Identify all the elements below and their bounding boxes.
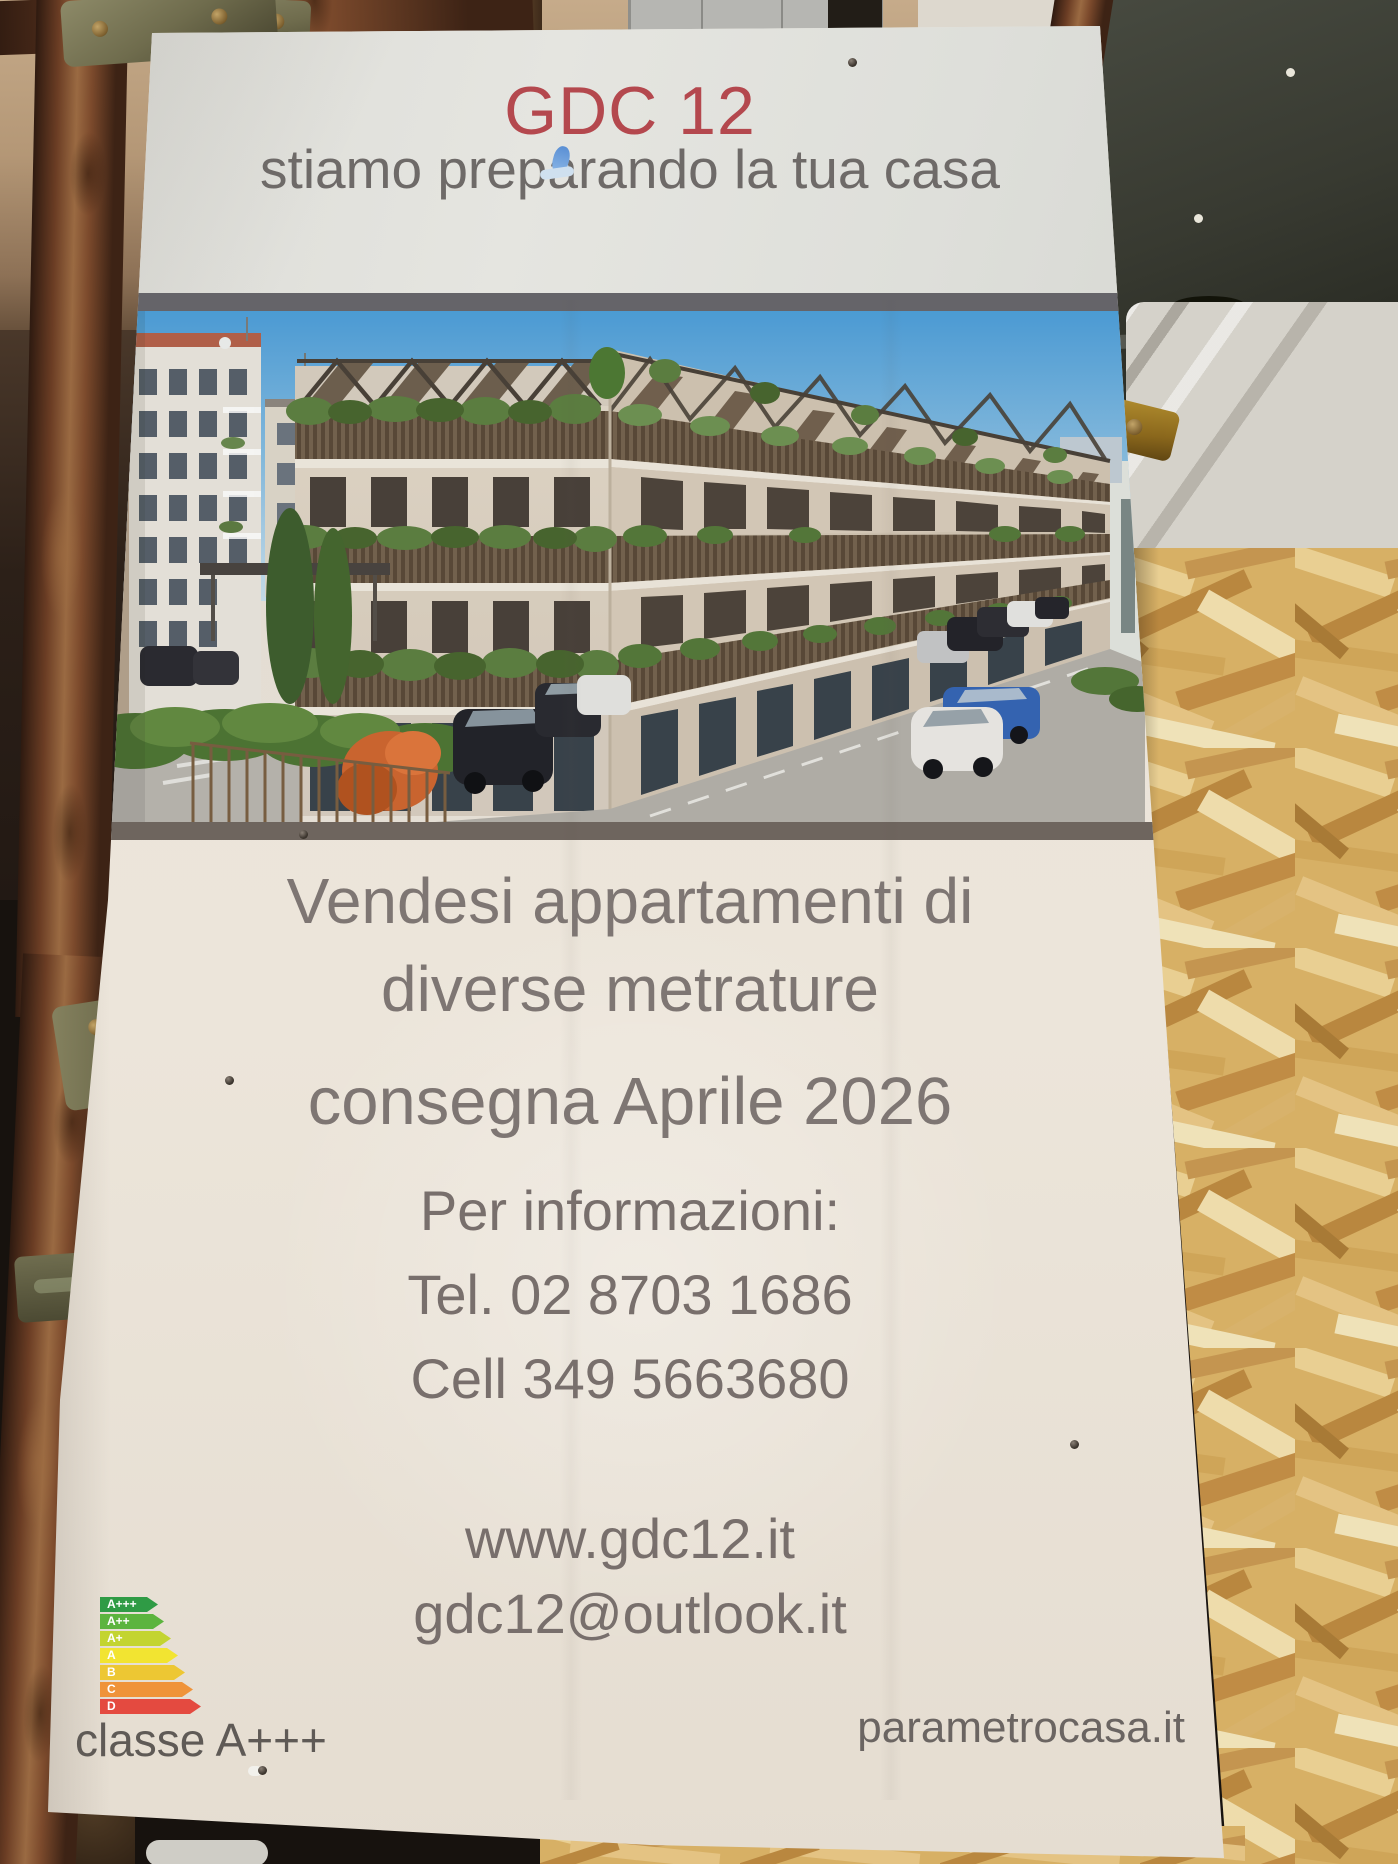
energy-arrow-A+: A+ [100,1631,171,1646]
phone-number: Tel. 02 8703 1686 [150,1262,1110,1327]
delivery-line: consegna Aprile 2026 [150,1063,1110,1140]
screw [848,58,857,67]
metal-hole-light [1194,214,1203,223]
mobile-number: Cell 349 5663680 [150,1346,1110,1411]
energy-arrow-C: C [100,1682,193,1697]
website-url: www.gdc12.it [150,1506,1110,1571]
construction-sign-photo: GDC 12 stiamo preparando la tua casa [0,0,1398,1864]
sign-subtitle: stiamo preparando la tua casa [150,137,1110,201]
energy-arrow-A+++: A+++ [100,1597,158,1612]
info-label: Per informazioni: [150,1178,1110,1243]
metal-joint [701,0,703,34]
energy-arrow-B: B [100,1665,185,1680]
light-object [146,1840,268,1864]
metal-hole-light [1286,68,1295,77]
energy-scale: A+++A++A+ABCD [100,1597,201,1716]
agency-name: parametrocasa.it [640,1703,1185,1753]
divider-bar-bottom [30,822,1170,840]
email-address: gdc12@outlook.it [150,1581,1110,1646]
clamp-bolt [91,20,108,37]
dark-gap [828,0,882,31]
energy-arrow-A++: A++ [100,1614,164,1629]
clamp-bolt [1125,417,1144,436]
clamp-bolt [211,8,228,25]
screw [299,830,308,839]
sale-line-1: Vendesi appartamenti di [150,864,1110,938]
energy-arrow-D: D [100,1699,201,1714]
divider-bar-top [30,293,1170,311]
screw [1070,1440,1079,1449]
screw [225,1076,234,1085]
energy-arrow-A: A [100,1648,178,1663]
energy-class-label: classe A+++ [75,1713,327,1767]
building-render-photo [105,311,1145,822]
screw [258,1766,267,1775]
sale-line-2: diverse metrature [150,952,1110,1026]
